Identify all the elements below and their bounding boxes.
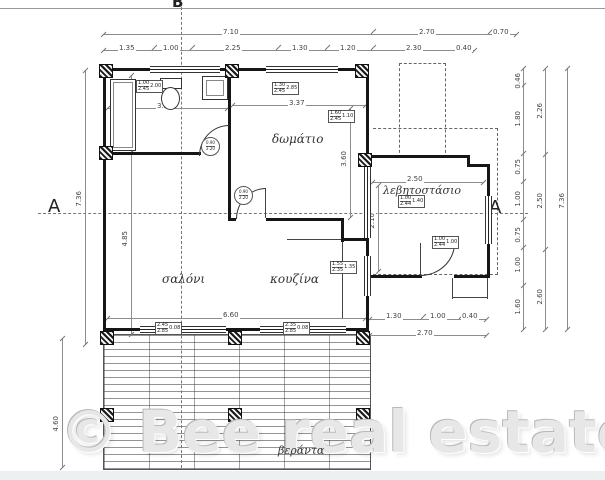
dim-label: 1.00 bbox=[515, 256, 522, 274]
tag-value: 2.85 bbox=[157, 329, 168, 334]
top-border-line bbox=[0, 8, 605, 9]
section-marker-a-left: A bbox=[48, 196, 60, 217]
room-label-boiler: λεβητοστάσιο bbox=[383, 184, 461, 197]
tag-value: 1.35 bbox=[344, 265, 355, 270]
dim-label-top-overhang: 0.70 bbox=[492, 29, 510, 36]
shower-closet-inner bbox=[113, 82, 133, 148]
section-marker-b: Β bbox=[172, 0, 183, 11]
kitchen-counter-line-h bbox=[287, 239, 341, 240]
dim-label-veranda-depth: 4.60 bbox=[53, 415, 60, 433]
room-label-living: σαλόνι bbox=[162, 272, 205, 286]
dim-label-right-total: 7.36 bbox=[559, 192, 566, 210]
dim-label-interior-width: 6.60 bbox=[222, 312, 240, 319]
dim-label: 0.75 bbox=[515, 158, 522, 176]
dim-line-top-total bbox=[103, 34, 517, 35]
dim-label: 0.40 bbox=[461, 313, 479, 320]
wall-step-horizontal bbox=[341, 238, 369, 241]
sink-basin bbox=[206, 80, 224, 96]
dim-line-right-chain bbox=[523, 68, 524, 330]
window-bedroom-top bbox=[266, 66, 338, 73]
wall-boiler-bottom-right bbox=[454, 275, 490, 278]
door-tag-bathroom: 0.90 2.20 bbox=[201, 137, 220, 156]
tag-value: 2.44 bbox=[434, 243, 445, 248]
tag-value: 2.45 bbox=[138, 87, 149, 92]
room-label-bedroom: δωμάτιο bbox=[272, 132, 323, 146]
dim-label: 1.35 bbox=[118, 45, 136, 52]
tag-value: 2.85 bbox=[285, 329, 296, 334]
window-boiler-right bbox=[485, 196, 492, 244]
column bbox=[358, 153, 372, 167]
dim-line-bedroom-height bbox=[350, 108, 351, 218]
tag-value: 1.40 bbox=[412, 199, 423, 204]
dim-label-bottom-right-total: 2.70 bbox=[416, 330, 434, 337]
tag-value: 2.00 bbox=[150, 84, 161, 89]
column bbox=[225, 64, 239, 78]
tag-value: 2.45 bbox=[274, 89, 285, 94]
dim-label-top-total: 7.10 bbox=[222, 29, 240, 36]
column bbox=[100, 331, 114, 345]
dim-label-boiler-width: 2.50 bbox=[406, 176, 424, 183]
dim-label: 2.26 bbox=[537, 102, 544, 120]
window-tag-boiler-right: 1.002.44 1.00 bbox=[432, 236, 459, 249]
tag-value: 2.20 bbox=[239, 196, 248, 201]
dim-line-right-total bbox=[567, 68, 568, 330]
section-line-a bbox=[38, 213, 528, 214]
wall-bedroom-bottom bbox=[266, 218, 344, 221]
column bbox=[228, 331, 242, 345]
dim-label: 0.75 bbox=[515, 226, 522, 244]
window-tag-bedroom-right: 1.602.45 1.10 bbox=[328, 110, 355, 123]
dim-label: 1.60 bbox=[515, 298, 522, 316]
dim-label: 2.25 bbox=[224, 45, 242, 52]
tag-value: 0.08 bbox=[169, 326, 180, 331]
tag-value: 2.45 bbox=[330, 117, 341, 122]
dim-label: 1.00 bbox=[429, 313, 447, 320]
boiler-step-line-3 bbox=[487, 278, 488, 299]
door-tag-bedroom: 0.90 2.20 bbox=[234, 186, 253, 205]
dim-label-left-total: 7.36 bbox=[76, 190, 83, 208]
tag-value: 1.10 bbox=[342, 114, 353, 119]
dim-label-bedroom-height: 3.60 bbox=[341, 150, 348, 168]
window-tag-bath: 1.002.45 2.00 bbox=[136, 80, 163, 93]
dim-label: 2.60 bbox=[537, 288, 544, 306]
dim-label: 1.80 bbox=[515, 110, 522, 128]
dim-label-bedroom-width: 3.37 bbox=[288, 100, 306, 107]
dim-line-boiler-width bbox=[372, 182, 484, 183]
wall-east-bedroom bbox=[366, 68, 369, 165]
dim-label: 1.00 bbox=[515, 190, 522, 208]
window-tag-kitchen-right: 1.552.35 1.35 bbox=[330, 261, 357, 274]
boiler-step-line-1 bbox=[452, 278, 453, 299]
toilet-bowl bbox=[161, 87, 180, 110]
wall-bath-bottom bbox=[103, 152, 201, 155]
dim-line-right-mid-chain bbox=[545, 68, 546, 330]
wall-boiler-top bbox=[366, 155, 470, 158]
tag-value: 1.00 bbox=[446, 240, 457, 245]
room-label-kitchen: κουζίνα bbox=[270, 272, 319, 286]
dim-label: 1.20 bbox=[339, 45, 357, 52]
bottom-gray-strip bbox=[0, 471, 605, 480]
window-tag-kitchen-bottom: 2.352.85 0.08 bbox=[283, 322, 310, 335]
column bbox=[99, 64, 113, 78]
column bbox=[356, 331, 370, 345]
dim-label: 0.46 bbox=[515, 72, 522, 90]
column bbox=[355, 64, 369, 78]
dim-line-left-total bbox=[85, 70, 86, 345]
dim-label-left-lower: 4.85 bbox=[122, 230, 129, 248]
wall-left bbox=[103, 68, 106, 331]
dim-label: 1.30 bbox=[385, 313, 403, 320]
window-tag-living-bottom: 2.452.85 0.08 bbox=[155, 322, 182, 335]
window-living-bottom bbox=[140, 326, 226, 333]
room-label-veranda: βεράντα bbox=[278, 444, 324, 457]
window-east-passage bbox=[364, 165, 371, 238]
watermark-text: © Bee real estate bbox=[60, 398, 605, 466]
dim-label-top-right: 2.70 bbox=[418, 29, 436, 36]
window-bath-top bbox=[150, 66, 220, 73]
dim-line-boiler-height bbox=[378, 185, 379, 272]
wall-boiler-bottom-left bbox=[366, 275, 422, 278]
wall-bedroom-bottom-stub bbox=[228, 218, 236, 221]
window-kitchen-east bbox=[364, 256, 371, 296]
tag-value: 2.44 bbox=[400, 202, 411, 207]
tag-value: 2.35 bbox=[332, 268, 343, 273]
dim-label: 2.30 bbox=[405, 45, 423, 52]
floor-plan-canvas: Β A A bbox=[0, 0, 605, 480]
kitchen-counter-line-v bbox=[342, 242, 343, 318]
column bbox=[99, 146, 113, 160]
tag-value: 2.20 bbox=[206, 147, 215, 152]
dim-label: 1.00 bbox=[162, 45, 180, 52]
dim-label: 2.50 bbox=[537, 192, 544, 210]
dim-label: 0.40 bbox=[455, 45, 473, 52]
dim-label: 1.30 bbox=[291, 45, 309, 52]
tag-value: 0.08 bbox=[297, 326, 308, 331]
tag-value: 2.85 bbox=[286, 86, 297, 91]
window-tag-bedroom-top: 1.302.45 2.85 bbox=[272, 82, 299, 95]
boiler-step-line-2 bbox=[452, 297, 488, 298]
